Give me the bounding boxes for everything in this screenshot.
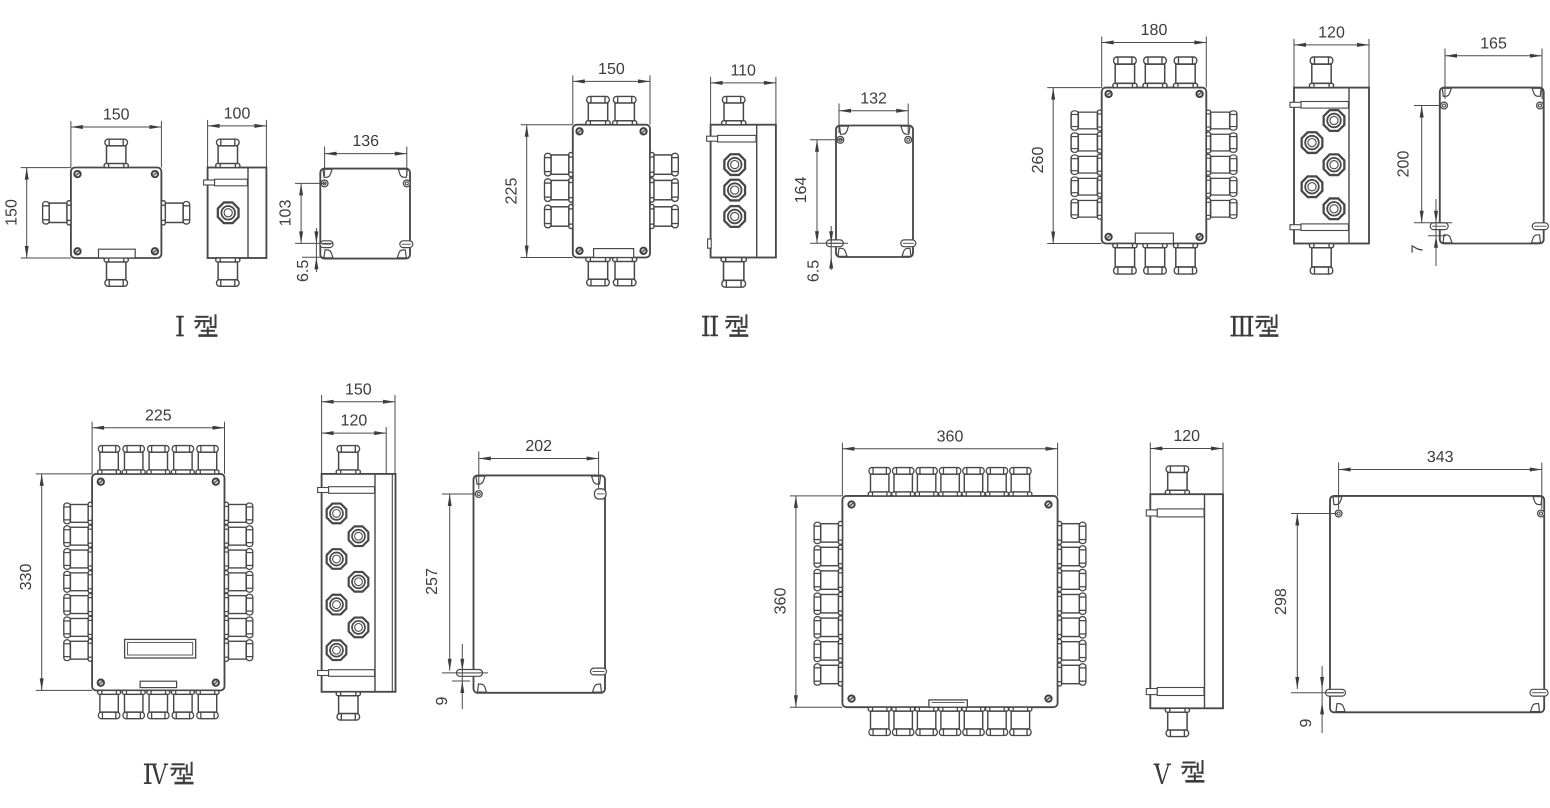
svg-text:136: 136 bbox=[352, 133, 379, 150]
svg-text:180: 180 bbox=[1141, 22, 1168, 39]
svg-text:9: 9 bbox=[1298, 718, 1315, 727]
svg-text:202: 202 bbox=[525, 438, 552, 455]
svg-text:6.5: 6.5 bbox=[806, 260, 823, 282]
svg-text:150: 150 bbox=[4, 199, 21, 226]
svg-text:110: 110 bbox=[730, 63, 756, 80]
svg-text:150: 150 bbox=[103, 107, 130, 124]
svg-text:343: 343 bbox=[1427, 449, 1454, 466]
svg-text:200: 200 bbox=[1396, 151, 1413, 178]
svg-text:360: 360 bbox=[773, 588, 790, 615]
svg-text:225: 225 bbox=[145, 407, 172, 424]
svg-text:120: 120 bbox=[341, 413, 368, 430]
svg-text:100: 100 bbox=[224, 106, 251, 123]
svg-text:330: 330 bbox=[18, 564, 35, 591]
svg-text:132: 132 bbox=[860, 90, 887, 107]
svg-text:165: 165 bbox=[1480, 35, 1507, 52]
svg-text:7: 7 bbox=[1409, 244, 1426, 253]
svg-text:9: 9 bbox=[434, 696, 451, 705]
svg-text:120: 120 bbox=[1318, 25, 1345, 42]
svg-text:257: 257 bbox=[424, 568, 441, 595]
svg-text:260: 260 bbox=[1030, 147, 1047, 174]
svg-text:360: 360 bbox=[937, 428, 964, 445]
svg-text:150: 150 bbox=[345, 381, 372, 398]
svg-text:120: 120 bbox=[1173, 428, 1200, 445]
svg-text:164: 164 bbox=[793, 177, 810, 204]
svg-text:6.5: 6.5 bbox=[295, 260, 312, 282]
svg-text:298: 298 bbox=[1273, 588, 1290, 615]
svg-text:103: 103 bbox=[278, 200, 295, 227]
svg-text:225: 225 bbox=[503, 178, 520, 205]
svg-text:150: 150 bbox=[598, 61, 625, 78]
